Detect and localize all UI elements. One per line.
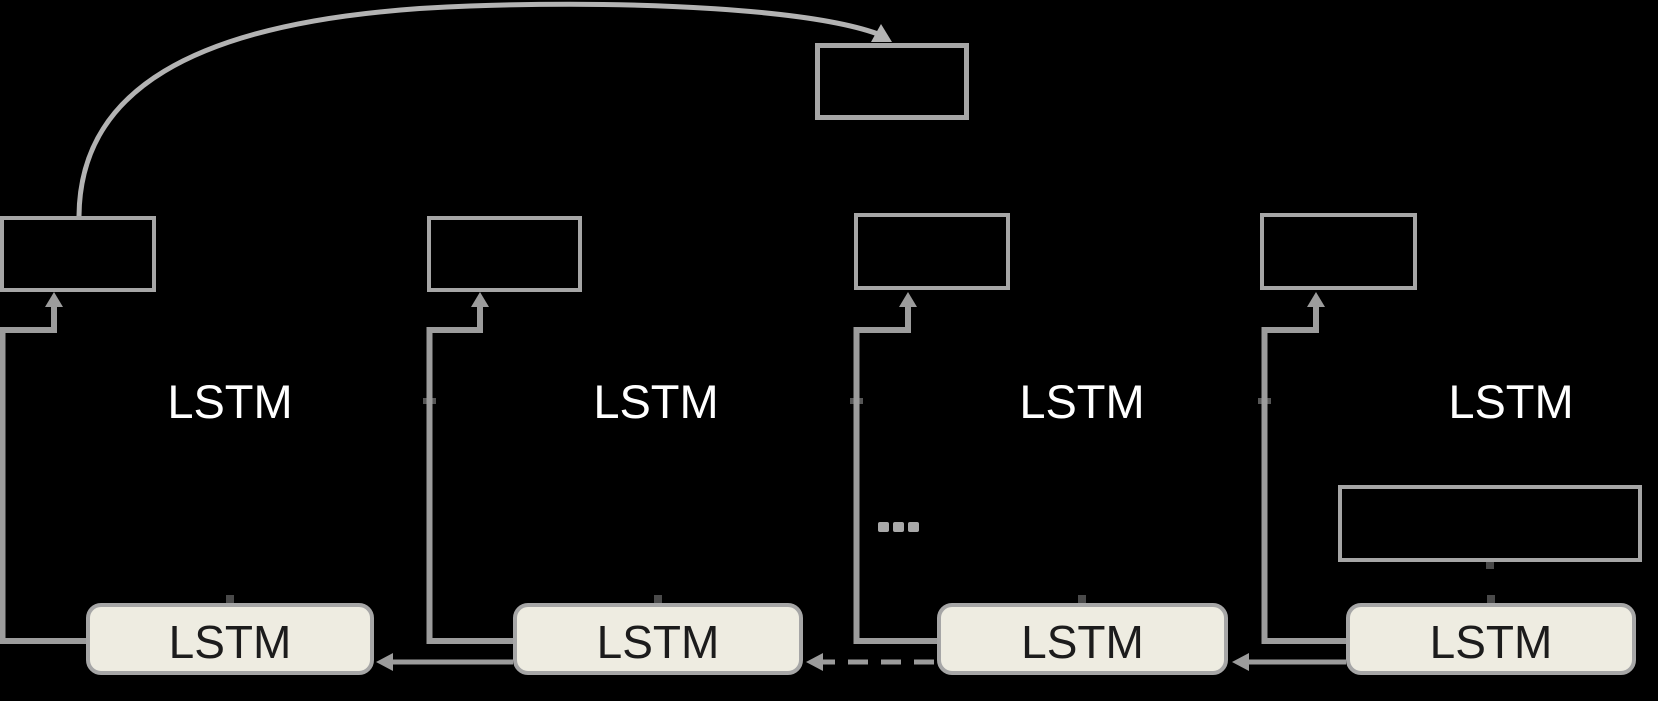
state-box-3 <box>854 213 1010 290</box>
lstm-cell-3-label: LSTM <box>1021 619 1144 665</box>
up-arrowhead-3 <box>899 292 917 307</box>
state-box-4 <box>1260 213 1417 290</box>
lstm-layer-label-4: LSTM <box>1431 376 1591 428</box>
lstm-cell-3: LSTM <box>937 603 1228 675</box>
wire-cell1-to-state1 <box>3 305 87 641</box>
wire-cell2-to-state2 <box>430 305 514 641</box>
lstm-cell-2-label: LSTM <box>597 619 720 665</box>
lstm-cell-1: LSTM <box>86 603 374 675</box>
state-box-1 <box>0 216 156 292</box>
lstm-layer-label-1: LSTM <box>150 376 310 428</box>
lstm-cell-1-label: LSTM <box>169 619 292 665</box>
left-arrowhead-2 <box>806 653 823 671</box>
lstm-layer-label-3: LSTM <box>1002 376 1162 428</box>
input-box <box>1338 485 1642 562</box>
lstm-cell-4: LSTM <box>1346 603 1636 675</box>
diagram-canvas: LSTM LSTM LSTM LSTM LSTM LSTM LSTM LSTM <box>0 0 1658 701</box>
top-output-box <box>815 43 969 120</box>
lstm-cell-4-label: LSTM <box>1430 619 1553 665</box>
up-arrowhead-2 <box>471 292 489 307</box>
up-arrowhead-1 <box>45 292 63 307</box>
up-arrowhead-4 <box>1307 292 1325 307</box>
state-box-2 <box>427 216 582 292</box>
lstm-cell-2: LSTM <box>513 603 803 675</box>
wire-cell4-to-state4 <box>1265 305 1347 641</box>
ellipsis-dots <box>878 522 919 532</box>
left-arrowhead-1 <box>376 653 393 671</box>
lstm-layer-label-2: LSTM <box>576 376 736 428</box>
left-arrowhead-3 <box>1232 653 1249 671</box>
wire-cell3-to-state3 <box>857 305 938 641</box>
